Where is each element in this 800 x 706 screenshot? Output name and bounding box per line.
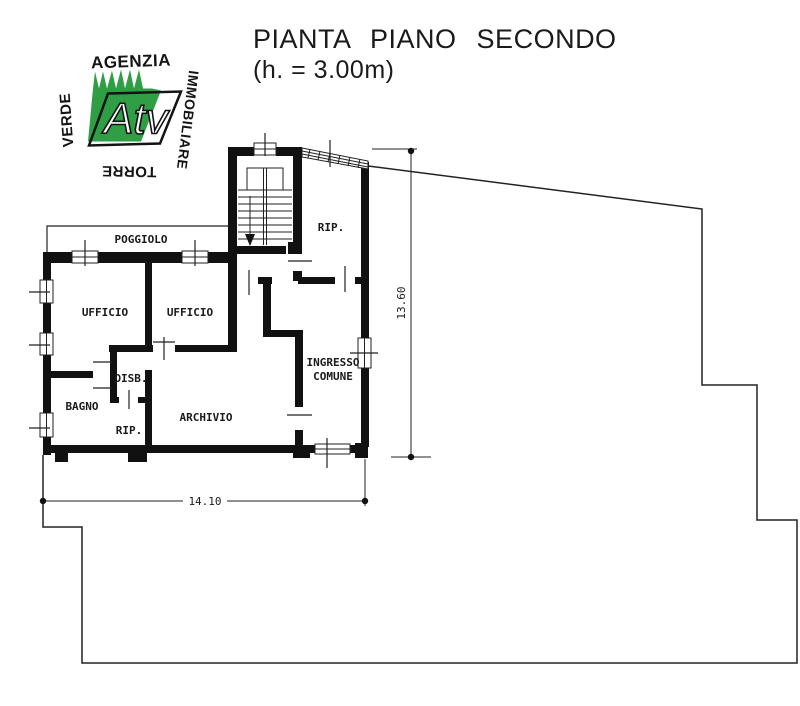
staircase [238, 168, 292, 246]
room-label-bagno: BAGNO [65, 400, 98, 413]
stairs-down-arrow-icon [245, 234, 255, 246]
dimension-label-height: 13.60 [395, 286, 408, 319]
room-label-disb: DISB. [114, 372, 147, 385]
dimension-label-width: 14.10 [188, 495, 221, 508]
room-label-ufficio-2: UFFICIO [167, 306, 214, 319]
room-label-rip-top: RIP. [318, 221, 345, 234]
floorplan-drawing: POGGIOLO UFFICIO UFFICIO RIP. DISB. BAGN… [0, 0, 800, 706]
room-label-archivio: ARCHIVIO [180, 411, 233, 424]
room-label-ingresso: INGRESSO [307, 356, 360, 369]
room-label-poggiolo: POGGIOLO [115, 233, 168, 246]
room-label-comune: COMUNE [313, 370, 353, 383]
scanned-floorplan-page: PIANTA PIANO SECONDO (h. = 3.00m) Atv AG… [0, 0, 800, 706]
room-label-rip-small: RIP. [116, 424, 143, 437]
room-label-ufficio-1: UFFICIO [82, 306, 129, 319]
